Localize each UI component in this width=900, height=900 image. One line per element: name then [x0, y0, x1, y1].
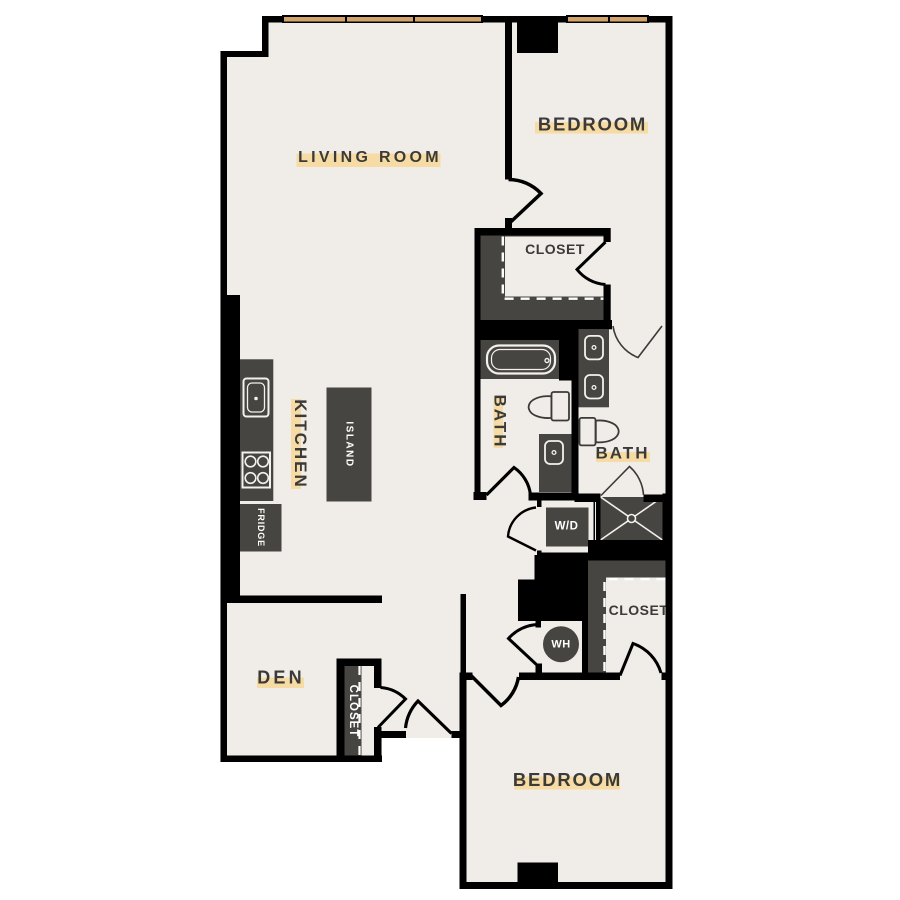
- svg-text:FRIDGE: FRIDGE: [256, 508, 266, 547]
- svg-text:WH: WH: [551, 639, 570, 651]
- svg-text:KITCHEN: KITCHEN: [291, 399, 310, 489]
- svg-text:ISLAND: ISLAND: [344, 421, 355, 467]
- svg-text:LIVING ROOM: LIVING ROOM: [298, 149, 442, 166]
- svg-text:CLOSET: CLOSET: [347, 685, 359, 738]
- svg-text:BATH: BATH: [491, 395, 510, 449]
- svg-text:DEN: DEN: [257, 667, 305, 687]
- svg-text:W/D: W/D: [555, 521, 579, 533]
- svg-text:BATH: BATH: [596, 444, 650, 463]
- svg-text:BEDROOM: BEDROOM: [538, 114, 647, 135]
- svg-text:CLOSET: CLOSET: [525, 241, 585, 257]
- svg-text:CLOSET: CLOSET: [609, 602, 669, 618]
- svg-text:BEDROOM: BEDROOM: [513, 769, 622, 790]
